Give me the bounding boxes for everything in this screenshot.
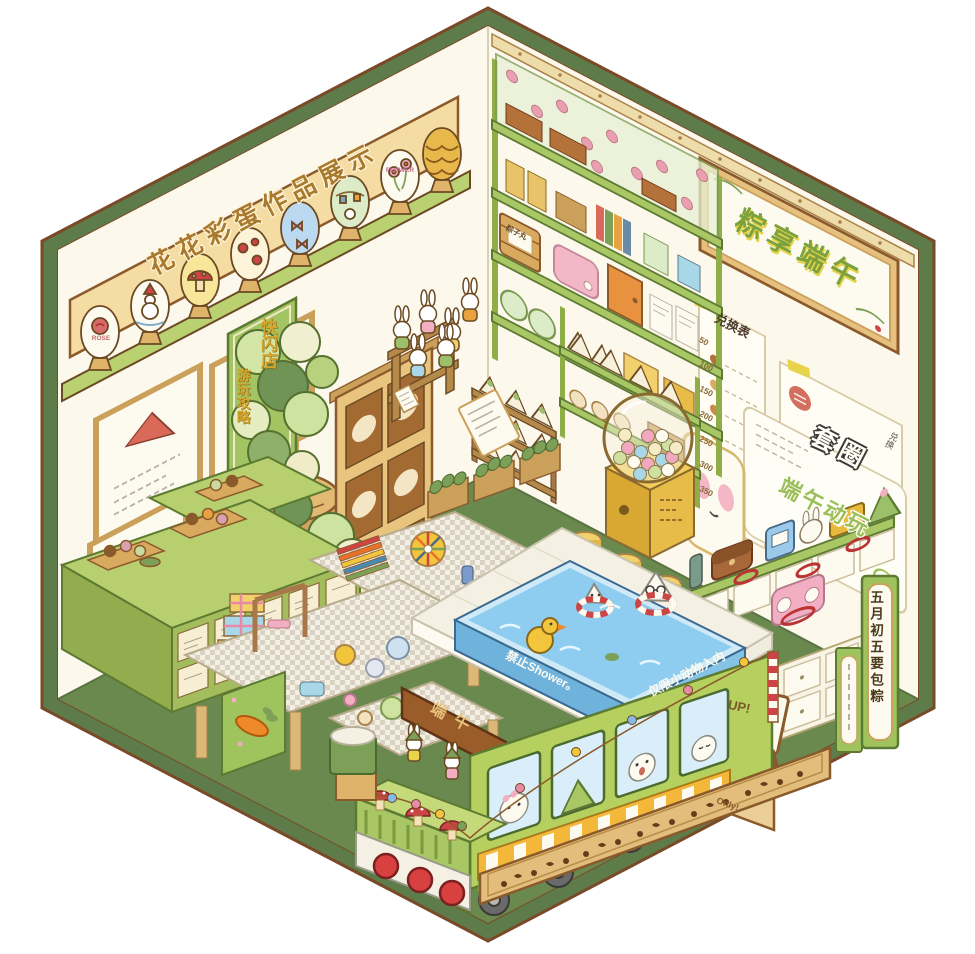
diorama-illustration: 花花彩蛋作品展示 ROSE FLOWER 快闪店 游玩攻略 粽享端午 兑换表 5…: [0, 0, 975, 954]
scene-artwork: [0, 0, 975, 954]
gacha-machine: [604, 394, 694, 558]
